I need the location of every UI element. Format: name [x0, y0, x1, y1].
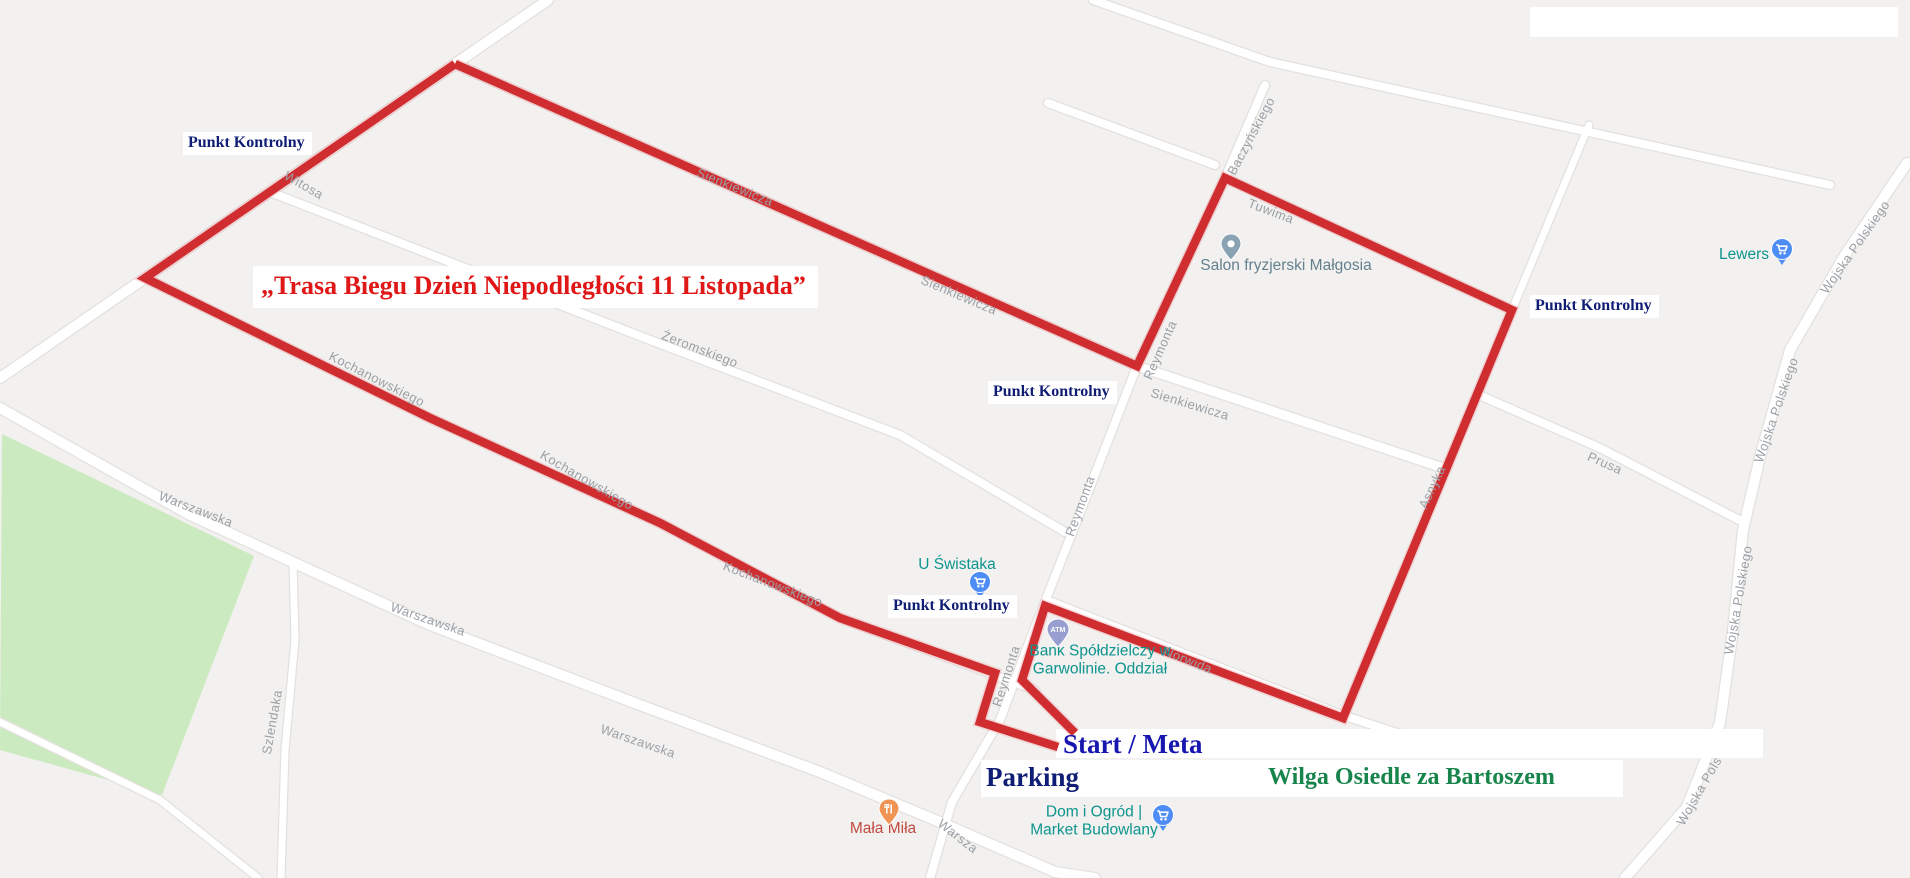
- street-label-warszawska: Warszawska: [157, 488, 235, 530]
- checkpoint-label-east: Punkt Kontrolny: [1530, 295, 1659, 318]
- poi-label-line: Garwolinie. Oddział: [1029, 661, 1170, 679]
- street-label-reymonta: Reymonta: [989, 644, 1023, 709]
- street-label-wojska-polskiego: Wojska Polskiego: [1751, 355, 1801, 464]
- poi-label-lewers[interactable]: Lewers: [1719, 246, 1769, 264]
- wilga-osiedle-label: Wilga Osiedle za Bartoszem: [1268, 764, 1555, 791]
- street-label-sienkiewicza: Sienkiewicza: [695, 165, 776, 209]
- poi-pin-bank-spoldzielczy[interactable]: ATM: [1046, 619, 1070, 652]
- checkpoint-label-center: Punkt Kontrolny: [988, 381, 1117, 404]
- checkpoint-label-south: Punkt Kontrolny: [888, 595, 1017, 618]
- atm-pin-icon[interactable]: ATM: [1046, 619, 1070, 647]
- start-meta-label: Start / Meta: [1063, 729, 1202, 760]
- street-label-szlendaka: Szlendaka: [259, 689, 285, 756]
- street-label-reymonta: Reymonta: [1140, 318, 1179, 382]
- street-label-sienkiewicza: Sienkiewicza: [919, 272, 1000, 318]
- street-label-asnyka: Asnyka: [1416, 463, 1449, 511]
- poi-pin-mala-mila[interactable]: [878, 799, 900, 830]
- svg-text:ATM: ATM: [1051, 627, 1066, 634]
- poi-label-line: Dom i Ogród |: [1030, 804, 1158, 822]
- shopping-cart-pin-icon[interactable]: [968, 571, 992, 598]
- parking-label: Parking: [986, 762, 1079, 793]
- street-label-kochanowskiego: Kochanowskiego: [327, 348, 428, 409]
- street-label-wojska-polskiego: Wojska Polskiego: [1721, 544, 1755, 655]
- street-label-prusa: Prusa: [1585, 449, 1624, 478]
- poi-label-line: Lewers: [1719, 246, 1769, 264]
- street-label-kochanowskiego: Kochanowskiego: [721, 558, 825, 610]
- street-label-witosa: Witosa: [282, 168, 327, 202]
- poi-pin-lewers[interactable]: [1770, 238, 1794, 270]
- street-label-reymonta: Reymonta: [1062, 474, 1098, 539]
- street-label-tuwima: Tuwima: [1246, 195, 1296, 226]
- shopping-cart-pin-icon[interactable]: [1151, 804, 1175, 831]
- poi-pin-salon-fryzjerski[interactable]: [1220, 234, 1242, 265]
- route-title: „Trasa Biegu Dzień Niepodległości 11 Lis…: [253, 266, 818, 308]
- street-label-warszawska: Warszawska: [389, 599, 468, 639]
- place-pin-icon[interactable]: [1220, 234, 1242, 260]
- poi-label-line: Market Budowlany: [1030, 822, 1158, 840]
- restaurant-pin-icon[interactable]: [878, 799, 900, 825]
- street-label--eromskiego: Żeromskiego: [660, 328, 741, 371]
- map-viewport[interactable]: WitosaSienkiewiczaSienkiewiczaSienkiewic…: [0, 0, 1910, 878]
- checkpoint-label-northwest: Punkt Kontrolny: [183, 132, 312, 155]
- street-label-wojska-pols: Wojska Pols: [1673, 754, 1724, 828]
- street-label-baczy-skiego: Baczyńskiego: [1224, 94, 1278, 177]
- street-label-warszawska: Warszawska: [599, 721, 678, 761]
- poi-label-dom-i-ogrod[interactable]: Dom i Ogród |Market Budowlany: [1030, 804, 1158, 841]
- street-label-warsza: Warsza: [935, 816, 981, 856]
- poi-pin-dom-i-ogrod[interactable]: [1151, 804, 1175, 836]
- street-label-kochanowskiego: Kochanowskiego: [538, 447, 637, 513]
- street-label-sienkiewicza: Sienkiewicza: [1149, 385, 1231, 423]
- street-label-wojska-polskiego: Wojska Polskiego: [1817, 197, 1893, 296]
- shopping-cart-pin-icon[interactable]: [1770, 238, 1794, 265]
